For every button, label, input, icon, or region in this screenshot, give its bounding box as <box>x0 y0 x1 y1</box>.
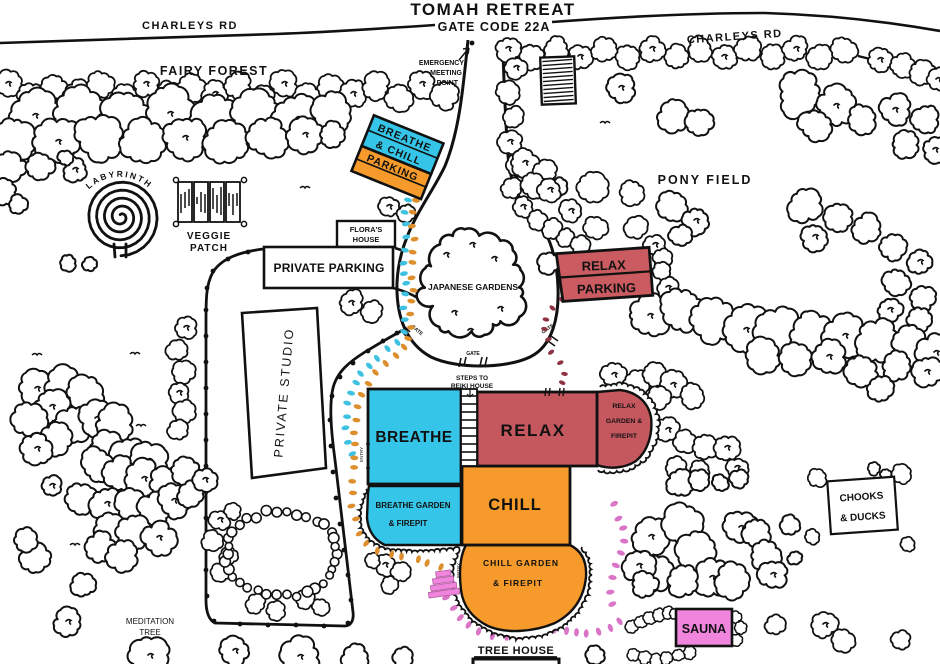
svg-text:MEETING: MEETING <box>430 70 462 77</box>
svg-text:STEPS TO: STEPS TO <box>456 375 488 382</box>
svg-text:PARKING: PARKING <box>577 280 636 297</box>
svg-text:ENTRY: ENTRY <box>456 563 461 578</box>
svg-text:GARDEN &: GARDEN & <box>606 418 642 425</box>
svg-text:VEGGIE: VEGGIE <box>187 231 231 242</box>
svg-text:RELAX: RELAX <box>612 403 636 410</box>
svg-text:TOMAH RETREAT: TOMAH RETREAT <box>410 0 575 19</box>
svg-text:MEDITATION: MEDITATION <box>126 617 174 626</box>
svg-text:FLORA'S: FLORA'S <box>350 225 383 234</box>
svg-text:FIREPIT: FIREPIT <box>611 433 638 440</box>
svg-text:GATE: GATE <box>466 351 480 357</box>
svg-text:REIKI HOUSE: REIKI HOUSE <box>451 383 494 390</box>
svg-text:TREE: TREE <box>139 628 160 637</box>
svg-text:TREE HOUSE: TREE HOUSE <box>478 645 555 657</box>
svg-text:FAIRY FOREST: FAIRY FOREST <box>160 64 268 78</box>
svg-text:PATCH: PATCH <box>190 243 228 254</box>
svg-text:PRIVATE PARKING: PRIVATE PARKING <box>273 261 384 275</box>
svg-text:PONY FIELD: PONY FIELD <box>658 173 753 187</box>
svg-text:EMERGENCY: EMERGENCY <box>419 60 464 67</box>
svg-text:GATE CODE 22A: GATE CODE 22A <box>438 20 551 34</box>
svg-text:CHILL GARDEN: CHILL GARDEN <box>483 558 559 568</box>
svg-text:& FIREPIT: & FIREPIT <box>389 519 428 528</box>
svg-text:& FIREPIT: & FIREPIT <box>493 578 543 588</box>
svg-text:BREATHE GARDEN: BREATHE GARDEN <box>376 501 451 510</box>
svg-text:RELAX: RELAX <box>581 257 626 274</box>
svg-text:JAPANESE GARDENS: JAPANESE GARDENS <box>428 282 518 292</box>
svg-text:CHILL: CHILL <box>488 496 542 514</box>
svg-text:HOUSE: HOUSE <box>353 235 380 244</box>
svg-text:CHARLEYS RD: CHARLEYS RD <box>142 20 238 32</box>
svg-text:BREATHE: BREATHE <box>375 429 452 446</box>
svg-text:SAUNA: SAUNA <box>682 622 726 636</box>
svg-text:ENTRY: ENTRY <box>359 447 364 462</box>
svg-text:RELAX: RELAX <box>500 421 565 440</box>
svg-text:POINT: POINT <box>437 80 459 87</box>
